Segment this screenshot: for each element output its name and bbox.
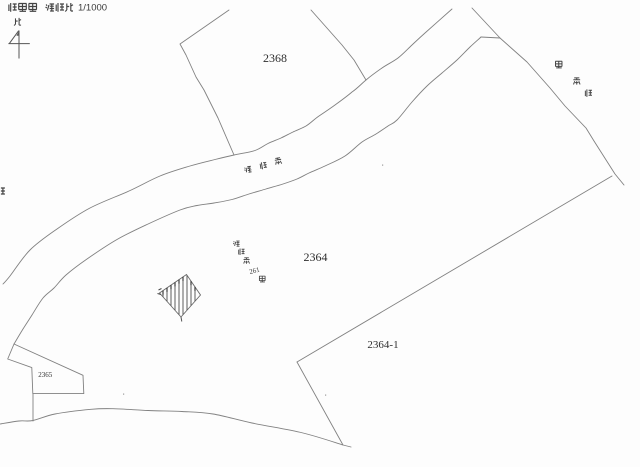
svg-text:261: 261 [248,266,261,276]
svg-text:2365: 2365 [38,371,53,379]
svg-text:2368: 2368 [263,51,287,65]
svg-text:1/1000: 1/1000 [78,3,107,14]
svg-text:2364-1: 2364-1 [367,339,398,351]
svg-text:2364: 2364 [304,250,328,264]
